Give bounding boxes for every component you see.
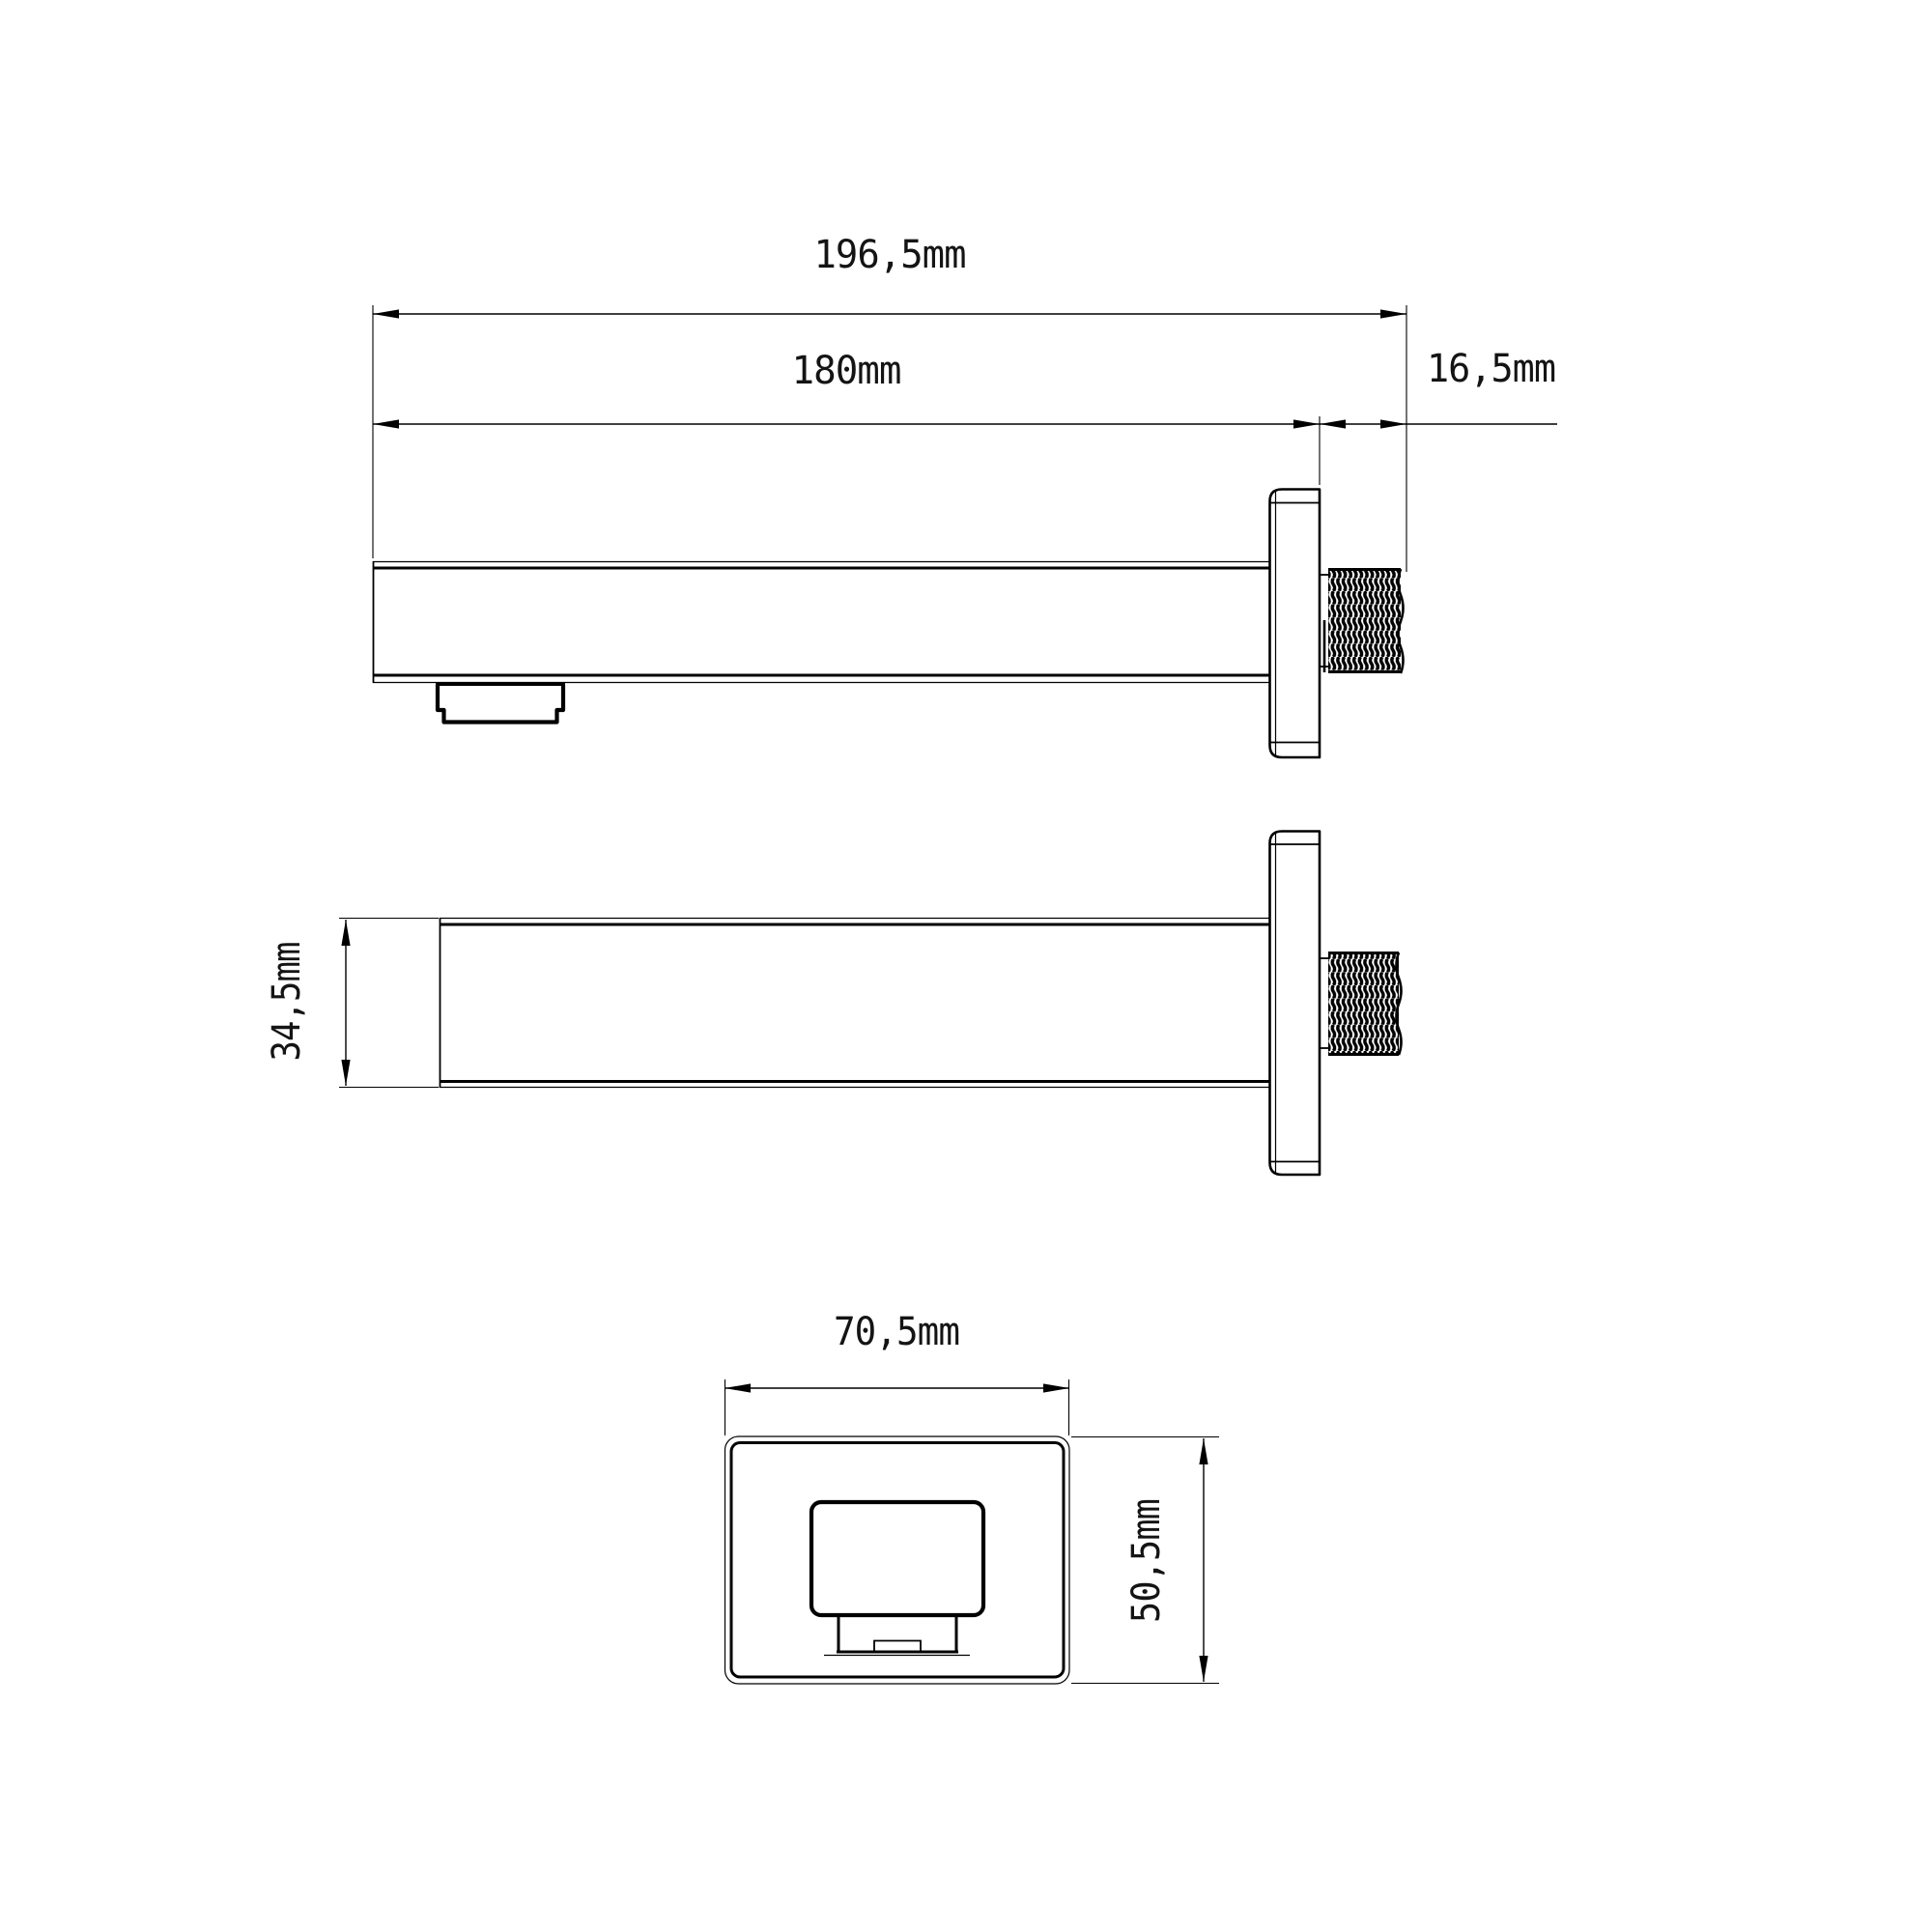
wall-plate-front xyxy=(725,1436,1070,1684)
nozzle-outline xyxy=(438,685,563,723)
outlet-nozzle-side xyxy=(436,685,565,723)
arrow-down-icon xyxy=(1199,1656,1207,1682)
spout-body-side xyxy=(373,561,1269,683)
arrow-right-icon xyxy=(1043,1383,1069,1392)
spout-tube-front xyxy=(811,1502,983,1615)
arrow-up-icon xyxy=(341,920,350,946)
dimension-label-plate-width: 70,5mm xyxy=(834,1310,959,1354)
nozzle-notch xyxy=(874,1641,921,1653)
dimension-plate-width: 70,5mm xyxy=(724,1310,1069,1435)
plate-outer-outline xyxy=(725,1436,1070,1684)
thread-texture xyxy=(1328,569,1401,673)
side-view: 196,5mm 180mm 16,5mm xyxy=(373,233,1557,757)
outlet-nozzle-front xyxy=(824,1615,970,1656)
wall-flange-side xyxy=(1270,490,1321,758)
arrow-left-icon xyxy=(373,309,399,318)
arrow-left-icon xyxy=(1320,419,1346,428)
front-view: 70,5mm 50,5mm xyxy=(724,1310,1219,1684)
arrow-left-icon xyxy=(724,1383,751,1392)
dimension-thread-length: 16,5mm xyxy=(1320,347,1557,429)
plate-inner-outline xyxy=(731,1443,1064,1678)
dimension-spout-length: 180mm xyxy=(373,349,1320,485)
dimension-label-thread-length: 16,5mm xyxy=(1427,347,1555,391)
flange-outline xyxy=(1270,832,1321,1176)
arrow-down-icon xyxy=(341,1060,350,1086)
dimension-plate-height: 50,5mm xyxy=(1071,1437,1219,1684)
dimension-total-length: 196,5mm xyxy=(373,233,1406,572)
dimension-label-total-length: 196,5mm xyxy=(814,233,966,277)
spout-body-top xyxy=(440,918,1269,1088)
arrow-left-icon xyxy=(373,419,399,428)
technical-drawing-page: 196,5mm 180mm 16,5mm xyxy=(0,0,1932,1932)
dimension-spout-width: 34,5mm xyxy=(265,919,439,1088)
dimension-label-plate-height: 50,5mm xyxy=(1124,1499,1169,1623)
arrow-up-icon xyxy=(1199,1438,1207,1464)
dimension-label-spout-length: 180mm xyxy=(792,349,901,393)
wall-flange-top xyxy=(1270,832,1321,1176)
arrow-right-icon xyxy=(1380,309,1406,318)
thread-texture xyxy=(1328,952,1399,1055)
dimension-drawing-svg: 196,5mm 180mm 16,5mm xyxy=(0,0,1932,1932)
tube-outline xyxy=(811,1502,983,1615)
flange-outline xyxy=(1270,490,1321,758)
arrow-right-icon xyxy=(1293,419,1320,428)
dimension-label-spout-width: 34,5mm xyxy=(265,943,309,1062)
top-view: 34,5mm xyxy=(265,832,1402,1176)
arrow-right-icon xyxy=(1380,419,1406,428)
threaded-connector-top xyxy=(1320,952,1402,1055)
threaded-connector-side xyxy=(1320,569,1404,673)
